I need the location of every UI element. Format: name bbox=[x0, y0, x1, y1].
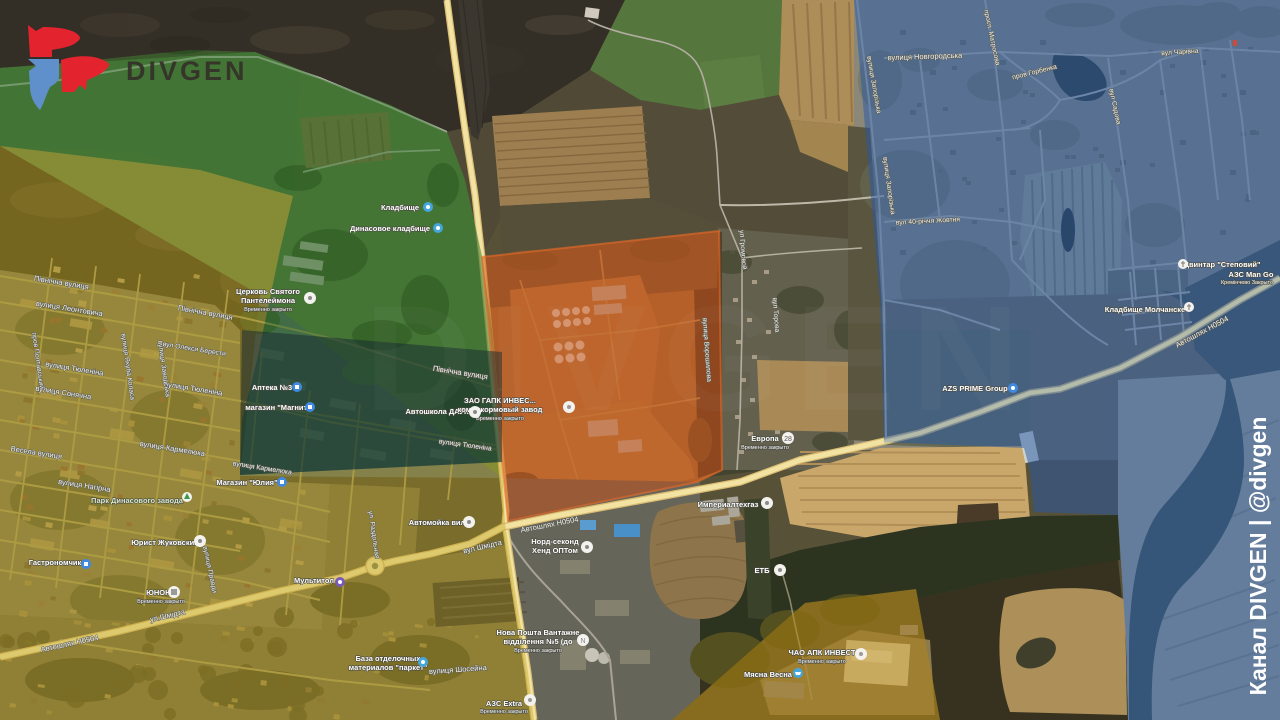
svg-text:Временно закрыто: Временно закрыто bbox=[514, 648, 562, 654]
svg-text:DIVGEN: DIVGEN bbox=[364, 274, 1035, 442]
svg-text:Кремінчево Закрыто: Кремінчево Закрыто bbox=[1221, 280, 1273, 286]
svg-text:Церковь Святого: Церковь Святого bbox=[236, 287, 300, 296]
svg-text:АЗС Man Go: АЗС Man Go bbox=[1229, 270, 1274, 279]
svg-text:Временно закрыто: Временно закрыто bbox=[741, 445, 789, 451]
svg-text:Хенд ОПТом: Хенд ОПТом bbox=[532, 546, 578, 555]
svg-text:Кладбище Молчанске: Кладбище Молчанске bbox=[1105, 305, 1185, 314]
svg-text:ЕТБ: ЕТБ bbox=[755, 566, 771, 575]
svg-text:ЧАО АПК ИНВЕСТ: ЧАО АПК ИНВЕСТ bbox=[789, 648, 856, 657]
svg-text:Мясна Весна: Мясна Весна bbox=[744, 670, 793, 679]
svg-text:Империалтехгаз: Империалтехгаз bbox=[698, 500, 759, 509]
svg-text:Цвинтар "Степовий": Цвинтар "Степовий" bbox=[1183, 260, 1260, 269]
svg-text:Временно закрыто: Временно закрыто bbox=[244, 307, 292, 313]
svg-text:магазин "Магнит": магазин "Магнит" bbox=[245, 403, 311, 412]
svg-text:DIVGEN: DIVGEN bbox=[126, 56, 248, 86]
svg-text:Динасовое кладбище: Динасовое кладбище bbox=[350, 224, 430, 233]
svg-text:Временно закрыто: Временно закрыто bbox=[480, 709, 528, 715]
svg-text:Кладбище: Кладбище bbox=[381, 203, 419, 212]
svg-text:N: N bbox=[580, 638, 585, 645]
svg-text:Автомойка вил: Автомойка вил bbox=[409, 518, 466, 527]
svg-text:відділення №5 (до: відділення №5 (до bbox=[503, 637, 573, 646]
svg-text:АЗС Extra: АЗС Extra bbox=[486, 699, 523, 708]
svg-text:Аптека №3: Аптека №3 bbox=[252, 383, 292, 392]
svg-text:Временно закрыто: Временно закрыто bbox=[798, 659, 846, 665]
svg-text:Гастрономчик: Гастрономчик bbox=[29, 558, 82, 567]
svg-text:Пантелеймона: Пантелеймона bbox=[241, 296, 296, 305]
svg-text:Магазин "Юлия": Магазин "Юлия" bbox=[216, 478, 278, 487]
svg-text:Юрист Жуковский: Юрист Жуковский bbox=[131, 538, 199, 547]
svg-text:Норд-секонд: Норд-секонд bbox=[531, 537, 579, 546]
svg-text:Нова Пошта Вантажне: Нова Пошта Вантажне bbox=[497, 628, 580, 637]
svg-text:Мультитол: Мультитол bbox=[294, 576, 334, 585]
svg-text:Канал DIVGEN | @divgen: Канал DIVGEN | @divgen bbox=[1245, 417, 1271, 696]
svg-text:База отделочных: База отделочных bbox=[356, 654, 422, 663]
svg-text:Парк Динасового завода: Парк Динасового завода bbox=[91, 496, 184, 505]
svg-text:материалов "паркет": материалов "паркет" bbox=[349, 663, 428, 672]
svg-text:Временно закрыто: Временно закрыто bbox=[137, 599, 185, 605]
